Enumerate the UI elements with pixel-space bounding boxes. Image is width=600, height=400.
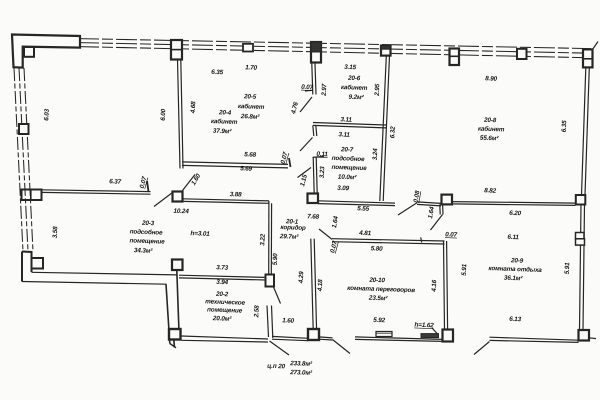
svg-text:6.00: 6.00 — [160, 108, 168, 121]
svg-text:помещение: помещение — [331, 164, 367, 172]
svg-text:h=3.01: h=3.01 — [190, 230, 210, 238]
svg-text:подсобное: подсобное — [130, 227, 164, 236]
svg-text:5.55: 5.55 — [357, 205, 370, 212]
svg-text:6.37: 6.37 — [109, 178, 122, 185]
svg-text:6.11: 6.11 — [507, 234, 519, 241]
svg-text:6.20: 6.20 — [509, 210, 522, 217]
svg-text:кабинет: кабинет — [341, 83, 368, 92]
svg-text:техническое: техническое — [205, 298, 246, 306]
svg-text:помещение: помещение — [129, 237, 165, 245]
svg-text:34.3м²: 34.3м² — [134, 247, 154, 255]
svg-text:0.07: 0.07 — [445, 231, 458, 238]
svg-text:кабинет: кабинет — [211, 117, 238, 126]
svg-text:3.22: 3.22 — [259, 233, 267, 246]
svg-text:3.11: 3.11 — [338, 131, 350, 138]
svg-text:4.29: 4.29 — [298, 271, 306, 285]
svg-text:3.73: 3.73 — [216, 264, 229, 271]
svg-text:3.15: 3.15 — [344, 64, 357, 71]
svg-text:10.24: 10.24 — [173, 208, 189, 216]
svg-text:0.08: 0.08 — [413, 190, 422, 203]
svg-text:26.8м²: 26.8м² — [240, 113, 261, 121]
svg-text:6.13: 6.13 — [509, 316, 522, 323]
svg-text:2.58: 2.58 — [253, 305, 261, 319]
svg-text:комната отдыха: комната отдыха — [488, 264, 542, 274]
svg-text:3.24: 3.24 — [372, 148, 380, 161]
svg-text:3.11: 3.11 — [340, 116, 352, 123]
svg-text:20-3: 20-3 — [141, 220, 155, 227]
svg-text:3.88: 3.88 — [230, 191, 243, 198]
svg-text:6.35: 6.35 — [211, 69, 224, 76]
svg-text:ц.п 20: ц.п 20 — [267, 363, 286, 371]
svg-text:5.90: 5.90 — [272, 253, 280, 266]
svg-text:233.8м²: 233.8м² — [289, 360, 313, 368]
svg-text:1.60: 1.60 — [190, 172, 202, 186]
svg-text:23.5м²: 23.5м² — [368, 295, 389, 303]
svg-text:1.60: 1.60 — [282, 317, 295, 324]
svg-text:8.82: 8.82 — [484, 187, 497, 194]
svg-text:273.0м²: 273.0м² — [289, 369, 313, 377]
svg-text:20-10: 20-10 — [368, 277, 385, 285]
svg-text:подсобное: подсобное — [332, 154, 366, 163]
svg-text:4.18: 4.18 — [317, 279, 325, 293]
svg-text:20-8: 20-8 — [483, 117, 497, 124]
svg-text:55.6м²: 55.6м² — [480, 135, 500, 143]
svg-text:20-4: 20-4 — [218, 109, 232, 116]
svg-text:36.1м²: 36.1м² — [504, 275, 524, 283]
svg-text:1.64: 1.64 — [331, 215, 340, 228]
svg-text:кабинет: кабинет — [478, 125, 505, 134]
svg-text:20-9: 20-9 — [510, 257, 524, 264]
svg-text:5.91: 5.91 — [461, 263, 469, 276]
svg-text:20-5: 20-5 — [243, 93, 257, 100]
svg-text:5.69: 5.69 — [240, 165, 253, 172]
svg-text:5.91: 5.91 — [564, 262, 572, 275]
svg-text:5.92: 5.92 — [373, 317, 386, 324]
svg-text:2.97: 2.97 — [321, 83, 329, 97]
svg-text:20-6: 20-6 — [347, 75, 361, 82]
svg-text:помещение: помещение — [207, 306, 243, 314]
svg-text:8.90: 8.90 — [485, 75, 498, 82]
svg-text:0.07: 0.07 — [280, 151, 290, 165]
svg-text:3.09: 3.09 — [337, 185, 350, 192]
svg-text:20-2: 20-2 — [215, 291, 229, 298]
svg-text:4.16: 4.16 — [431, 279, 439, 293]
svg-text:9.2м²: 9.2м² — [348, 94, 364, 102]
svg-text:1.64: 1.64 — [427, 206, 436, 219]
svg-text:0.11: 0.11 — [316, 151, 328, 158]
svg-text:2.95: 2.95 — [374, 83, 382, 97]
svg-text:7.68: 7.68 — [307, 213, 320, 220]
svg-text:5.80: 5.80 — [371, 245, 384, 252]
svg-text:комната переговоров: комната переговоров — [347, 285, 415, 294]
svg-text:коридор: коридор — [280, 223, 306, 232]
svg-text:20-7: 20-7 — [340, 146, 354, 153]
svg-text:3.23: 3.23 — [319, 166, 327, 179]
svg-text:6.03: 6.03 — [43, 108, 51, 121]
svg-text:3.94: 3.94 — [216, 279, 229, 286]
svg-text:5.68: 5.68 — [244, 151, 257, 158]
svg-text:0.07: 0.07 — [329, 240, 339, 254]
svg-text:4.81: 4.81 — [358, 230, 372, 237]
svg-text:0.07: 0.07 — [301, 84, 314, 91]
svg-text:h=1.62: h=1.62 — [414, 322, 434, 330]
svg-text:кабинет: кабинет — [238, 102, 265, 111]
svg-text:37.9м²: 37.9м² — [213, 128, 233, 136]
svg-text:1.70: 1.70 — [245, 64, 258, 71]
svg-text:29.7м²: 29.7м² — [279, 233, 300, 241]
svg-text:10.0м²: 10.0м² — [338, 174, 358, 182]
svg-text:4.76: 4.76 — [290, 101, 300, 116]
svg-text:3.58: 3.58 — [52, 226, 60, 239]
svg-text:6.35: 6.35 — [561, 120, 569, 133]
svg-text:20.0м²: 20.0м² — [212, 315, 233, 323]
svg-text:4.68: 4.68 — [190, 101, 198, 115]
svg-text:6.32: 6.32 — [389, 126, 397, 139]
